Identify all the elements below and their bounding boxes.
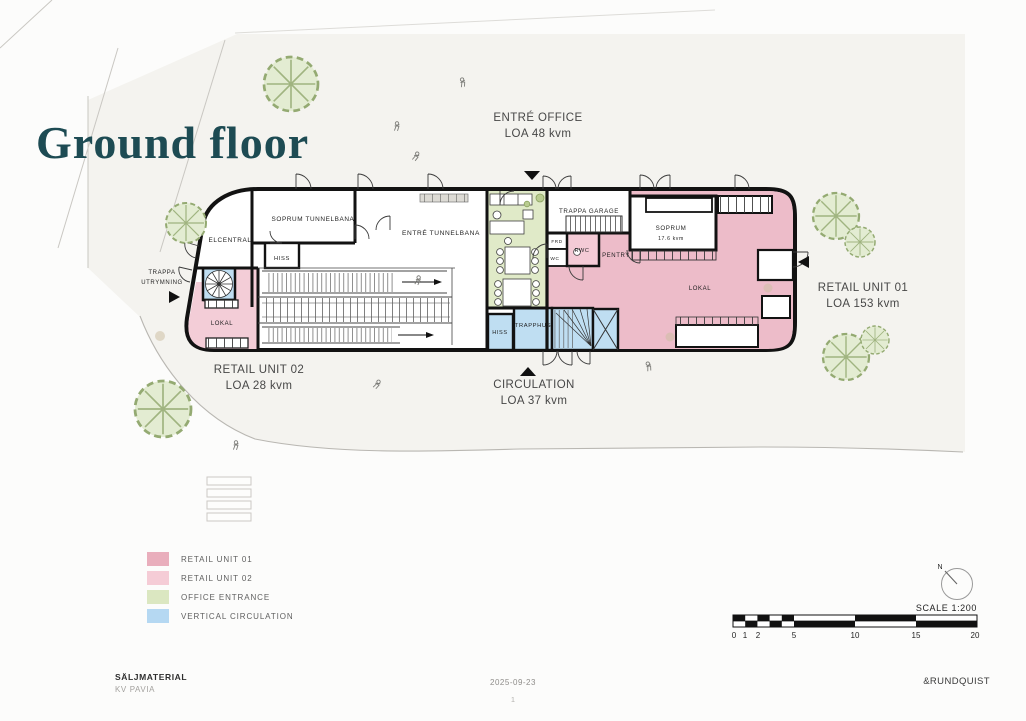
label-elcentral: ELCENTRAL: [208, 237, 251, 244]
legend-item-vertical-circulation: VERTICAL CIRCULATION: [147, 609, 294, 623]
annotation-area: LOA 153 kvm: [758, 297, 968, 313]
label-entre-tunnelbana: ENTRÉ TUNNELBANA: [402, 228, 480, 237]
scale-tick: 15: [912, 631, 921, 640]
label-pentry: PENTRY: [602, 253, 630, 259]
tree-icon: [861, 326, 889, 354]
annotation-retail-unit-02: RETAIL UNIT 02 LOA 28 kvm: [154, 363, 364, 394]
label-soprum-area: 17.6 kvm: [658, 236, 684, 242]
label-soprum-tunnelbana: SOPRUM TUNNELBANA: [272, 216, 355, 223]
label-frd: FRD: [551, 239, 562, 244]
annotation-circulation: CIRCULATION LOA 37 kvm: [429, 378, 639, 409]
figure-icon: [233, 441, 238, 450]
counter: [676, 325, 758, 347]
vertical-circulation-core: [488, 308, 618, 350]
label-soprum: SOPRUM: [656, 225, 687, 232]
label-hiss-left: HISS: [274, 256, 290, 262]
annotation-entre-office: ENTRÉ OFFICE LOA 48 kvm: [433, 111, 643, 142]
legend-swatch-vertical-circulation: [147, 609, 169, 623]
spiral-stair-icon: [206, 271, 233, 298]
label-rwc: RWC: [574, 248, 589, 254]
label-trappa-garage: TRAPPA GARAGE: [559, 208, 619, 215]
compass-north-label: N: [937, 564, 942, 571]
annotation-name: RETAIL UNIT 01: [758, 281, 968, 297]
building: [155, 171, 809, 376]
scale-tick: 10: [851, 631, 860, 640]
label-trapphus: TRAPPHUS: [515, 323, 551, 329]
label-trappa-utrymning-2: UTRYMNING: [141, 280, 183, 286]
legend-label: RETAIL UNIT 02: [181, 574, 253, 583]
label-lokal-retail02: LOKAL: [211, 321, 233, 327]
footer-date: 2025-09-23: [0, 678, 1026, 687]
entrance-notch: [758, 250, 793, 280]
annotation-retail-unit-01: RETAIL UNIT 01 LOA 153 kvm: [758, 281, 968, 312]
bench: [420, 194, 468, 202]
annotation-area: LOA 48 kvm: [433, 127, 643, 143]
label-trappa-utrymning-1: TRAPPA: [148, 270, 175, 276]
crosswalk: [207, 477, 251, 521]
scale-tick: 5: [792, 631, 797, 640]
legend-swatch-office-entrance: [147, 590, 169, 604]
scale-tick: 20: [971, 631, 980, 640]
scale-bar: SCALE 1:200 0 1 2 5 10 15 20: [732, 603, 980, 640]
legend: RETAIL UNIT 01 RETAIL UNIT 02 OFFICE ENT…: [147, 552, 294, 628]
legend-item-retail-unit-02: RETAIL UNIT 02: [147, 571, 294, 585]
footer-company: &RUNDQUIST: [923, 676, 990, 687]
tree-icon: [845, 227, 875, 257]
label-lokal-retail01: LOKAL: [689, 286, 711, 292]
legend-item-retail-unit-01: RETAIL UNIT 01: [147, 552, 294, 566]
scale-tick: 1: [743, 631, 748, 640]
annotation-name: ENTRÉ OFFICE: [433, 111, 643, 127]
legend-label: VERTICAL CIRCULATION: [181, 612, 294, 621]
tree-icon: [166, 203, 206, 243]
legend-label: OFFICE ENTRANCE: [181, 593, 270, 602]
scale-tick: 0: [732, 631, 737, 640]
legend-label: RETAIL UNIT 01: [181, 555, 253, 564]
legend-swatch-retail-unit-01: [147, 552, 169, 566]
page-title: Ground floor: [36, 116, 309, 169]
scale-label: SCALE 1:200: [916, 603, 977, 613]
drawing-sheet: SOPRUM TUNNELBANA ELCENTRAL HISS ENTRÉ T…: [0, 0, 1026, 721]
annotation-name: RETAIL UNIT 02: [154, 363, 364, 379]
scale-tick: 2: [756, 631, 761, 640]
label-hiss-core: HISS: [492, 330, 507, 336]
legend-swatch-retail-unit-02: [147, 571, 169, 585]
label-wc: WC: [550, 256, 559, 262]
annotation-area: LOA 37 kvm: [429, 394, 639, 410]
annotation-area: LOA 28 kvm: [154, 379, 364, 395]
garage-stair: [566, 216, 622, 232]
annotation-name: CIRCULATION: [429, 378, 639, 394]
compass-icon: N: [937, 564, 972, 600]
tree-icon: [264, 57, 318, 111]
legend-item-office-entrance: OFFICE ENTRANCE: [147, 590, 294, 604]
footer-page-number: 1: [0, 695, 1026, 704]
